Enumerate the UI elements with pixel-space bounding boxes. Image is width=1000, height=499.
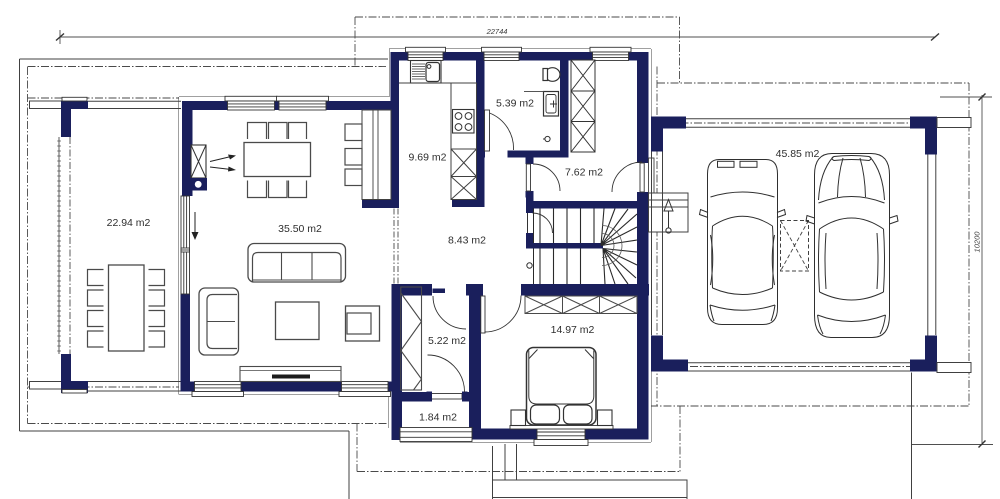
svg-text:14.97 m2: 14.97 m2 bbox=[551, 324, 595, 336]
svg-text:7.62 m2: 7.62 m2 bbox=[565, 167, 603, 179]
svg-text:35.50 m2: 35.50 m2 bbox=[278, 223, 322, 235]
svg-text:5.39 m2: 5.39 m2 bbox=[496, 98, 534, 110]
svg-text:9.69 m2: 9.69 m2 bbox=[409, 152, 447, 164]
svg-text:10200: 10200 bbox=[973, 231, 982, 253]
svg-text:22744: 22744 bbox=[486, 27, 508, 36]
svg-text:8.43 m2: 8.43 m2 bbox=[448, 235, 486, 247]
svg-text:22.94 m2: 22.94 m2 bbox=[107, 217, 151, 229]
svg-text:45.85 m2: 45.85 m2 bbox=[776, 148, 820, 160]
svg-text:5.22 m2: 5.22 m2 bbox=[428, 335, 466, 347]
svg-text:1.84 m2: 1.84 m2 bbox=[419, 412, 457, 424]
